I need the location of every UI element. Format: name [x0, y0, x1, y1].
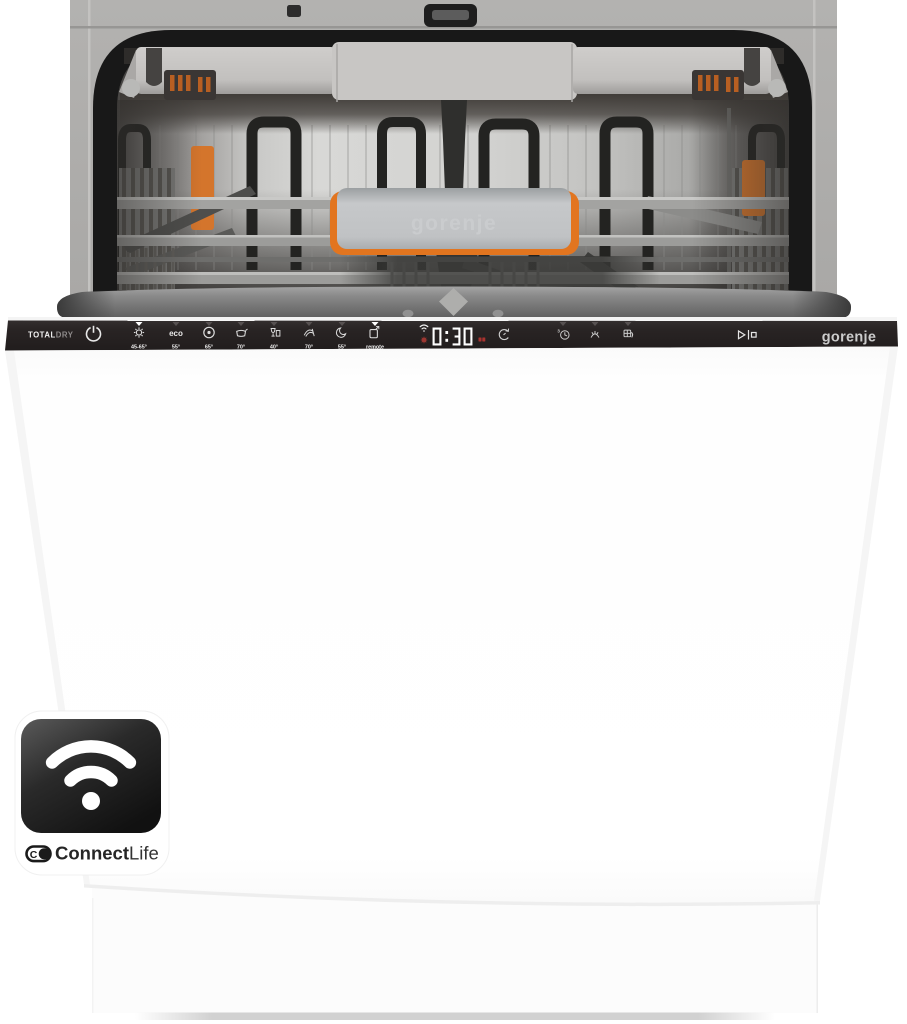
svg-text:gorenje: gorenje [822, 330, 876, 346]
svg-text:eco: eco [169, 329, 183, 338]
svg-text:55°: 55° [172, 345, 180, 351]
svg-text:C: C [30, 849, 38, 861]
svg-text:ConnectLife: ConnectLife [55, 843, 159, 864]
svg-text:45-65°: 45-65° [131, 345, 147, 351]
svg-text:gorenje: gorenje [411, 212, 497, 235]
svg-text:TOTALDRY: TOTALDRY [28, 331, 74, 340]
